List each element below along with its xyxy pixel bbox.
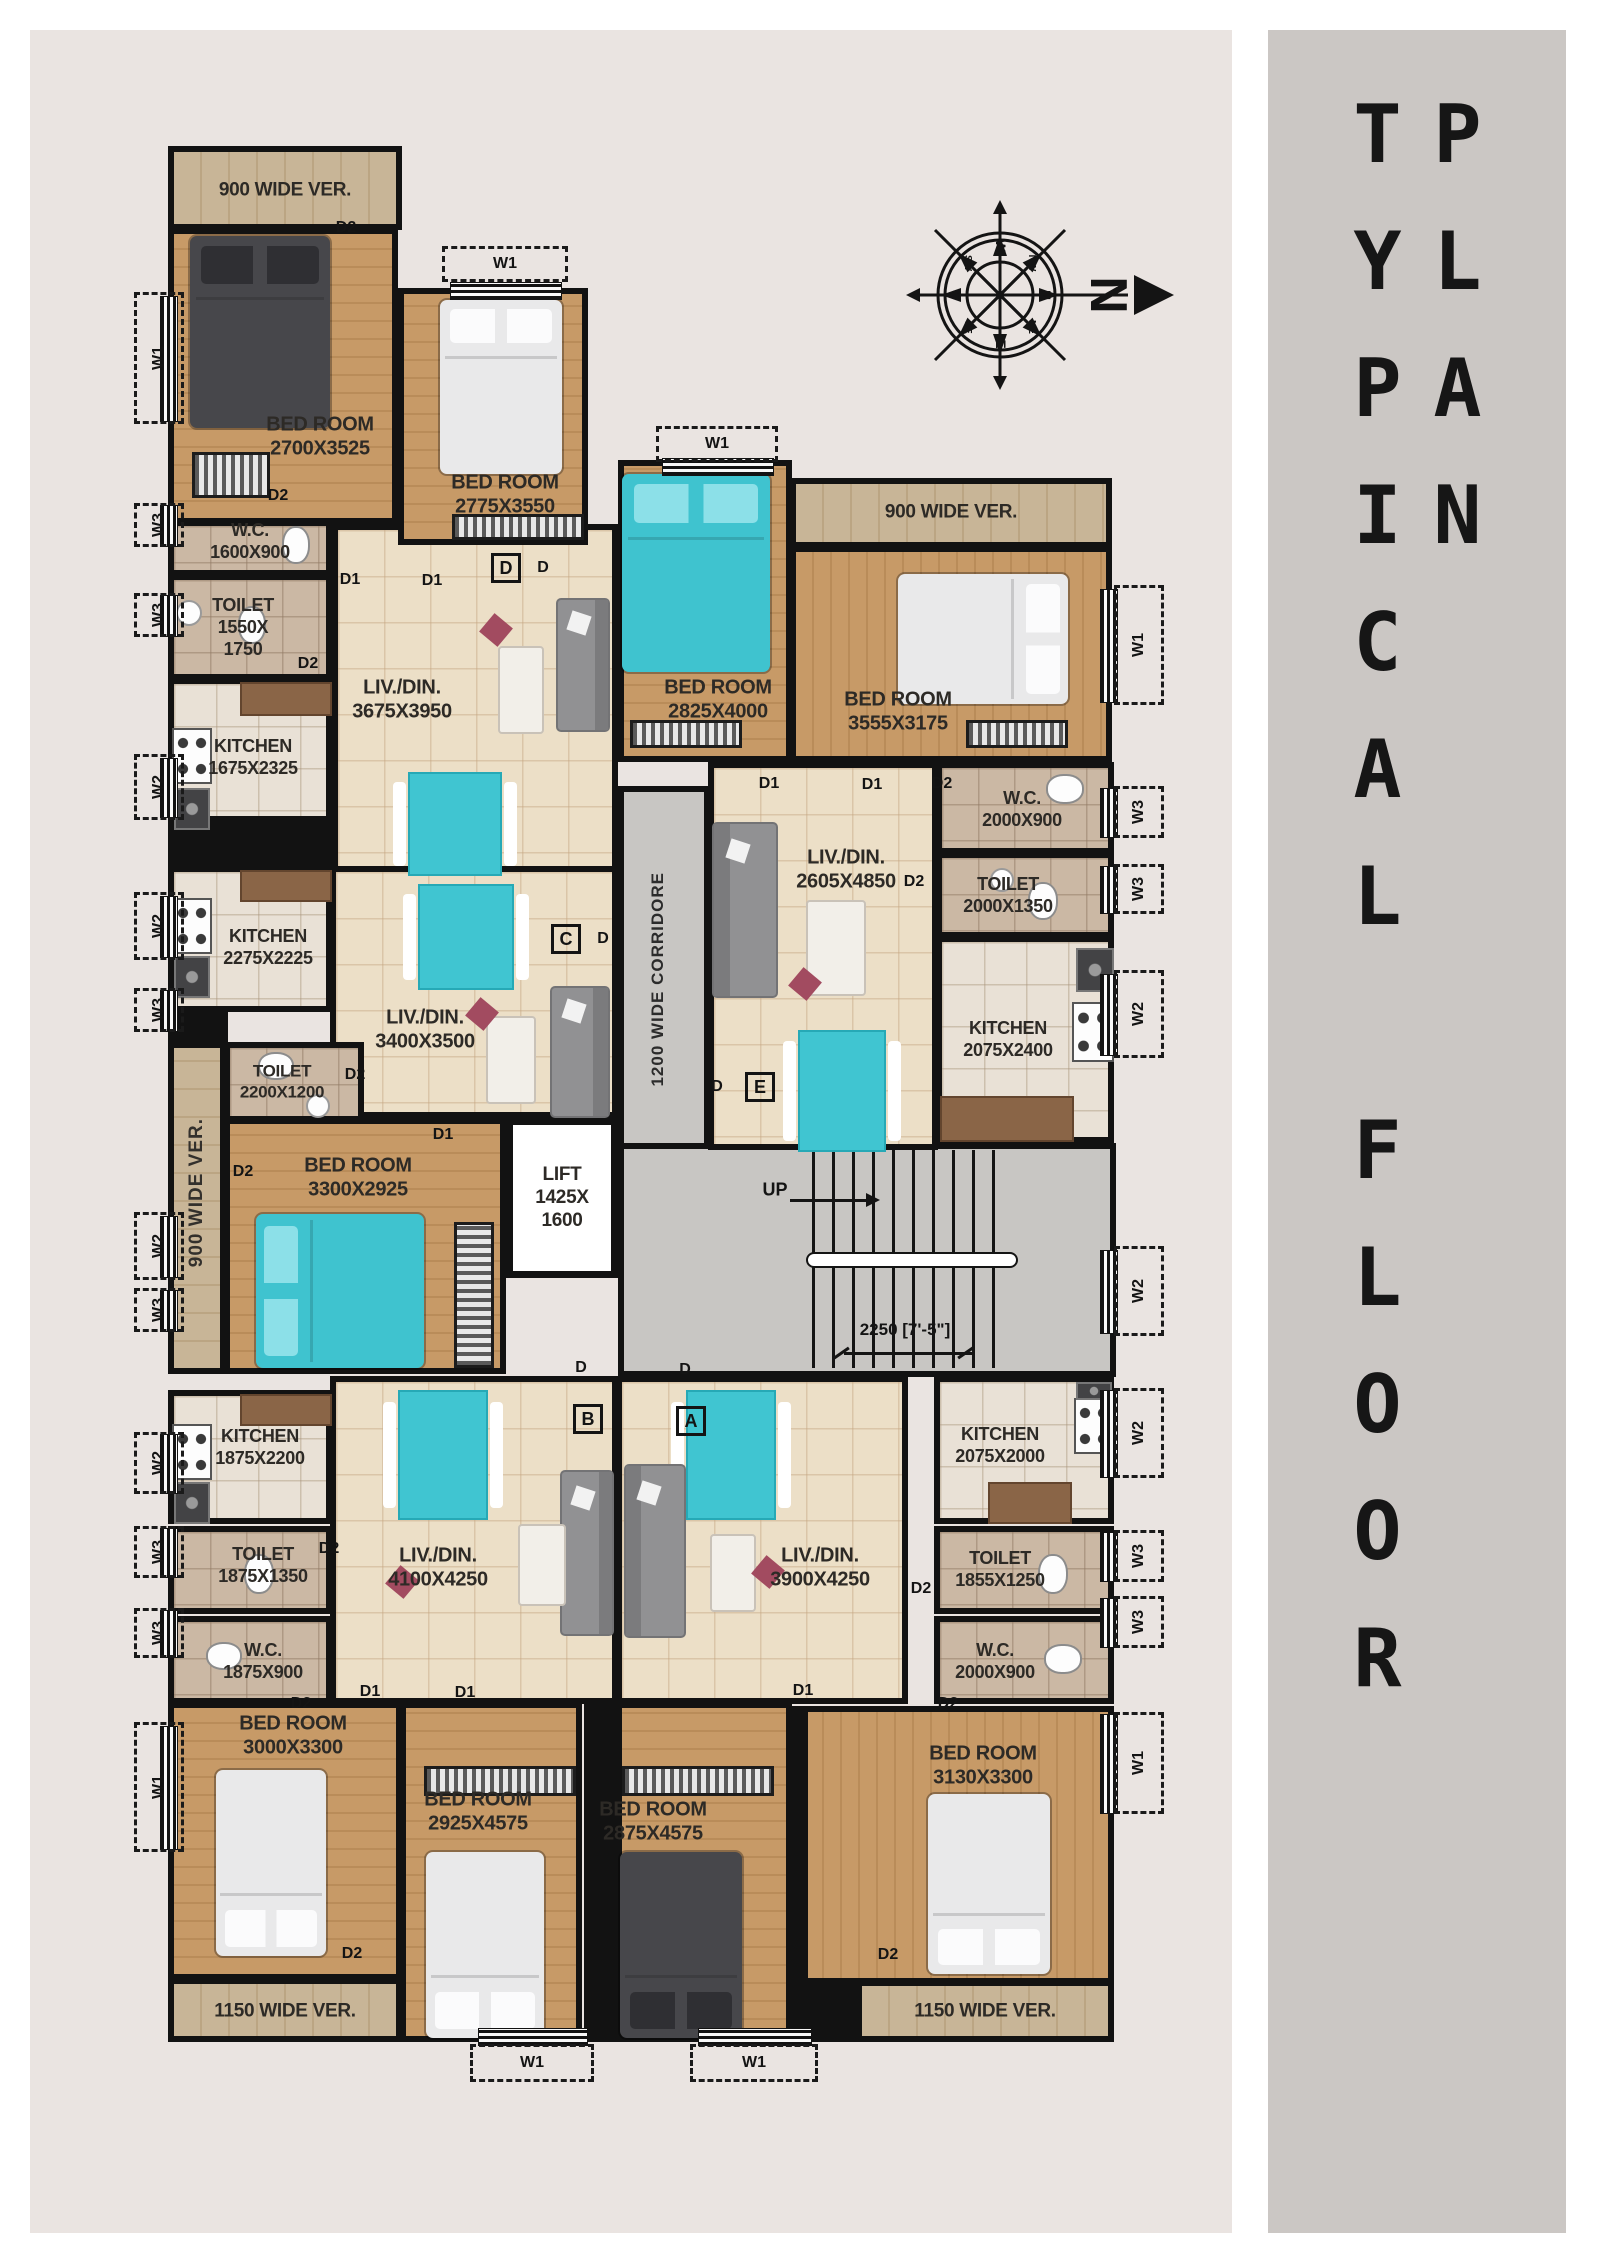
label-livdin: LIV./DIN.3400X3500 <box>375 1006 475 1055</box>
window-w1: W1 <box>442 246 568 282</box>
unit-c-marker: C <box>551 924 581 954</box>
door-label: D2 <box>904 873 924 891</box>
window-w2: W2 <box>134 1212 184 1280</box>
label-bedroom: BED ROOM2925X4575 <box>424 1788 532 1837</box>
window-w3: W3 <box>1114 864 1164 914</box>
wardrobe <box>622 1766 774 1796</box>
coffee-table <box>486 1016 536 1104</box>
door-label: D2 <box>298 655 318 673</box>
wardrobe <box>454 1222 494 1368</box>
window-w2: W2 <box>134 892 184 960</box>
compass-sw: SW <box>962 255 973 272</box>
window-w1: W1 <box>656 426 778 462</box>
unit-e-marker: E <box>745 1072 775 1102</box>
stair-landing-rail <box>806 1252 1018 1268</box>
door-label: D1 <box>433 1126 453 1144</box>
door-label: D2 <box>319 1540 339 1558</box>
window-w3: W3 <box>134 593 184 637</box>
door-label: D2 <box>938 1695 958 1713</box>
door-label: D1 <box>793 1682 813 1700</box>
door-label: D1 <box>360 1683 380 1701</box>
label-toilet: TOILET2200X1200 <box>240 1061 324 1102</box>
window-w3: W3 <box>1114 786 1164 838</box>
unit-d-entry: D <box>537 559 549 577</box>
kitchen-counter <box>940 1096 1074 1142</box>
unit-d-marker: D <box>491 553 521 583</box>
double-bed <box>426 1852 544 2038</box>
label-wc: W.C.1875X900 <box>223 1640 303 1684</box>
double-bed <box>216 1770 326 1956</box>
kitchen-counter <box>240 870 332 902</box>
window-w1: W1 <box>1114 585 1164 705</box>
title-panel: TYPICAL FLOOR PLAN <box>1268 30 1566 2233</box>
label-bedroom: BED ROOM3555X3175 <box>844 688 952 737</box>
unit-c-entry: D <box>597 930 609 948</box>
label-veranda-vertical: 900 WIDE VER. <box>186 1118 208 1267</box>
window-w3: W3 <box>134 503 184 547</box>
label-bedroom: BED ROOM3000X3300 <box>239 1712 347 1761</box>
window-w3: W3 <box>134 1608 184 1658</box>
coffee-table <box>710 1534 756 1612</box>
label-bedroom: BED ROOM3130X3300 <box>929 1742 1037 1791</box>
compass-ne: NE <box>1026 320 1037 334</box>
label-lift: LIFT1425X1600 <box>535 1163 588 1233</box>
double-bed <box>622 474 770 672</box>
label-bedroom: BED ROOM2825X4000 <box>664 676 772 725</box>
compass-rose: W N E S NW NE SW SE N <box>900 200 1190 395</box>
unit-b-entry: D <box>575 1359 587 1377</box>
wall-patch <box>584 1702 618 2042</box>
compass-w: W <box>993 239 1009 253</box>
label-livdin: LIV./DIN.2605X4850 <box>796 846 896 895</box>
door-label: D2 <box>233 1163 253 1181</box>
window-w2: W2 <box>1114 970 1164 1058</box>
window-w2: W2 <box>1114 1388 1164 1478</box>
coffee-table <box>518 1524 566 1606</box>
wardrobe <box>192 452 270 498</box>
compass-n: N <box>1038 290 1054 300</box>
label-kitchen: KITCHEN2075X2000 <box>955 1424 1044 1468</box>
sofa <box>556 598 610 732</box>
window-glyph <box>450 282 562 300</box>
window-w3: W3 <box>1114 1596 1164 1648</box>
label-toilet: TOILET2000X1350 <box>963 874 1052 918</box>
door-label: D1 <box>340 571 360 589</box>
label-veranda: 1150 WIDE VER. <box>914 1999 1056 2022</box>
double-bed <box>190 236 330 428</box>
label-veranda: 1150 WIDE VER. <box>214 1999 356 2022</box>
double-bed <box>928 1794 1050 1974</box>
coffee-table <box>498 646 544 734</box>
dining-table <box>408 772 502 876</box>
label-toilet: TOILET1855X1250 <box>955 1548 1044 1592</box>
unit-b-marker: B <box>573 1404 603 1434</box>
label-veranda: 900 WIDE VER. <box>885 500 1017 523</box>
door-label: D2 <box>336 219 356 237</box>
label-toilet: TOILET1875X1350 <box>218 1544 307 1588</box>
compass-se: SE <box>962 320 973 334</box>
kitchen-counter <box>240 1394 332 1426</box>
kitchen-counter <box>988 1482 1072 1524</box>
door-label: D2 <box>878 1946 898 1964</box>
door-label: D1 <box>759 775 779 793</box>
sofa <box>560 1470 614 1636</box>
door-label: D1 <box>422 572 442 590</box>
label-livdin: LIV./DIN.3675X3950 <box>352 676 452 725</box>
dimension-line <box>844 1352 972 1355</box>
sofa <box>712 822 778 998</box>
window-w2: W2 <box>1114 1246 1164 1336</box>
window-w1: W1 <box>470 2044 594 2082</box>
door-label: D2 <box>911 1580 931 1598</box>
sofa <box>624 1464 686 1638</box>
door-label: D1 <box>455 1684 475 1702</box>
page-title: TYPICAL FLOOR PLAN <box>1337 88 1497 2233</box>
up-arrow-line <box>790 1199 868 1202</box>
window-w1: W1 <box>1114 1712 1164 1814</box>
label-kitchen: KITCHEN1675X2325 <box>208 736 297 780</box>
double-bed <box>256 1214 424 1368</box>
compass-north-label: N <box>1079 276 1137 314</box>
window-w3: W3 <box>134 988 184 1032</box>
dining-table <box>798 1030 886 1152</box>
unit-e-entry: D <box>711 1078 723 1096</box>
window-w1: W1 <box>134 1722 184 1852</box>
window-w3: W3 <box>134 1288 184 1332</box>
label-wc: W.C.2000X900 <box>982 788 1062 832</box>
label-kitchen: KITCHEN2275X2225 <box>223 926 312 970</box>
double-bed <box>620 1852 742 2038</box>
label-bedroom: BED ROOM2775X3550 <box>451 471 559 520</box>
double-bed <box>898 574 1068 704</box>
window-w1: W1 <box>690 2044 818 2082</box>
label-bedroom: BED ROOM2700X3525 <box>266 413 374 462</box>
unit-a-marker: A <box>676 1406 706 1436</box>
window-w3: W3 <box>134 1526 184 1578</box>
label-kitchen: KITCHEN2075X2400 <box>963 1018 1052 1062</box>
stair-dimension: 2250 [7'-5"] <box>860 1320 951 1340</box>
kitchen-counter <box>240 682 332 716</box>
dining-table <box>418 884 514 990</box>
label-toilet: TOILET1550X1750 <box>212 595 274 661</box>
door-label: D2 <box>342 1945 362 1963</box>
label-veranda: 900 WIDE VER. <box>219 178 351 201</box>
label-bedroom: BED ROOM3300X2925 <box>304 1154 412 1203</box>
double-bed <box>440 300 562 474</box>
window-w3: W3 <box>1114 1530 1164 1582</box>
label-kitchen: KITCHEN1875X2200 <box>215 1426 304 1470</box>
dining-table <box>398 1390 488 1520</box>
label-up: UP <box>762 1180 787 1201</box>
window-w2: W2 <box>134 754 184 820</box>
wardrobe <box>966 720 1068 748</box>
compass-nw: NW <box>1026 255 1037 272</box>
sofa <box>550 986 610 1118</box>
label-bedroom: BED ROOM2875X4575 <box>599 1798 707 1847</box>
door-label: D2 <box>932 775 952 793</box>
label-wc: W.C.2000X900 <box>955 1640 1035 1684</box>
door-label: D2 <box>291 1695 311 1713</box>
door-label: D1 <box>862 776 882 794</box>
label-wc: W.C.1600X900 <box>210 520 290 564</box>
floor-plan-sheet: TYPICAL FLOOR PLAN <box>0 0 1600 2263</box>
label-livdin: LIV./DIN.4100X4250 <box>388 1544 488 1593</box>
toilet-bowl <box>1044 1644 1082 1674</box>
label-corridor: 1200 WIDE CORRIDORE <box>648 872 668 1087</box>
door-label: D2 <box>345 1066 365 1084</box>
compass-s: S <box>948 290 964 299</box>
window-w1: W1 <box>134 292 184 424</box>
compass-e: E <box>993 339 1009 348</box>
window-w2: W2 <box>134 1432 184 1494</box>
label-livdin: LIV./DIN.3900X4250 <box>770 1544 870 1593</box>
up-arrow-head <box>866 1193 880 1207</box>
wall-patch <box>786 1706 808 1984</box>
unit-a-entry: D <box>679 1361 691 1379</box>
door-label: D2 <box>268 487 288 505</box>
